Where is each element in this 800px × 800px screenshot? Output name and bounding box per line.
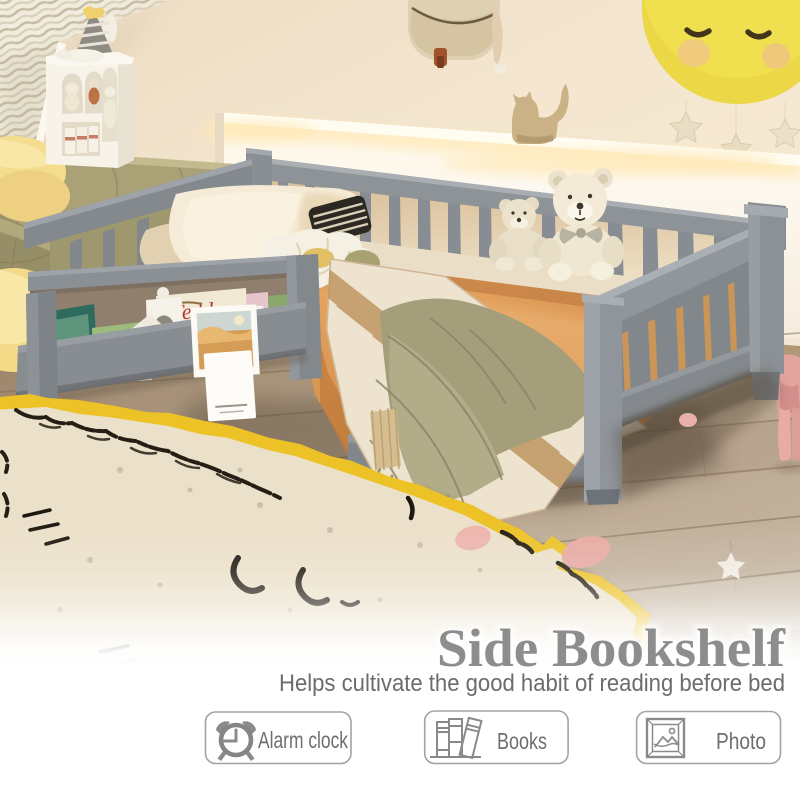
svg-text:Helps cultivate the good habit: Helps cultivate the good habit of readin… (279, 670, 785, 697)
svg-text:Side Bookshelf: Side Bookshelf (437, 618, 786, 678)
svg-text:Photo: Photo (716, 728, 766, 754)
svg-text:Alarm clock: Alarm clock (258, 727, 348, 753)
svg-text:Books: Books (497, 728, 547, 754)
